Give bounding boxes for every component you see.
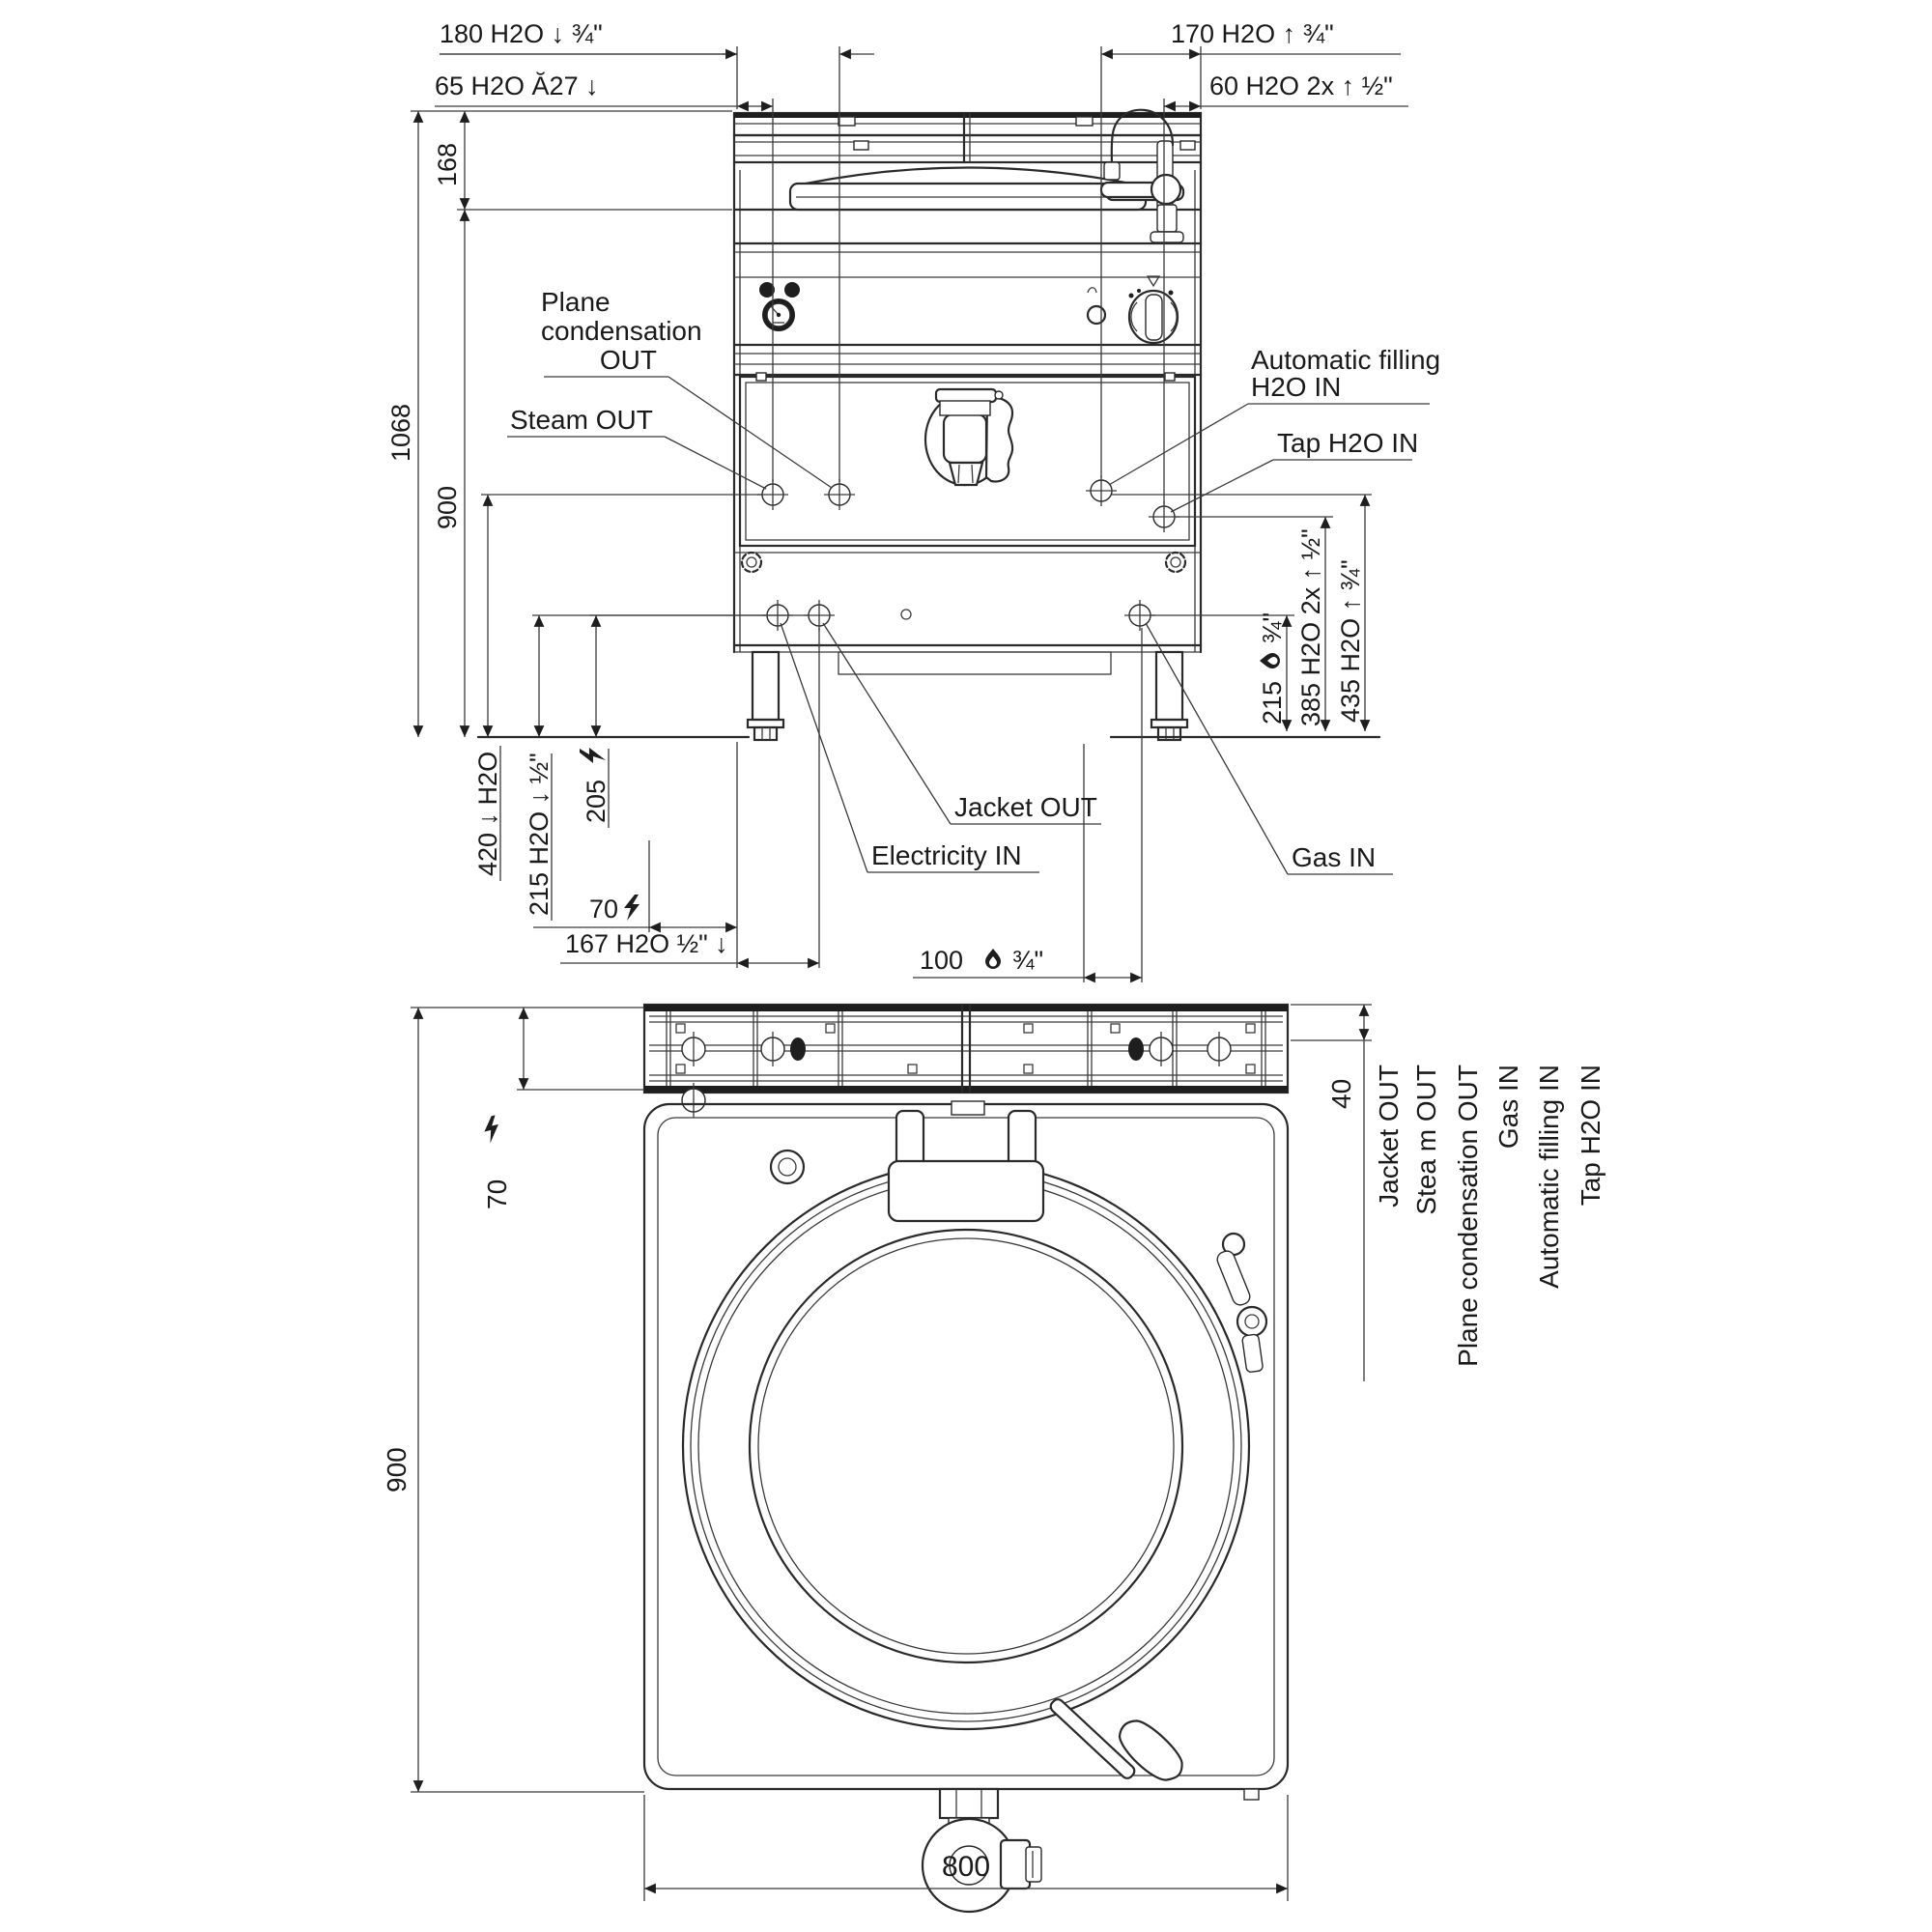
- kick-panel: [838, 652, 1111, 674]
- label-plane-condensation-3: OUT: [600, 345, 657, 375]
- dim-167-h2o: 167 H2O ½" ↓: [565, 929, 728, 958]
- dim-800-width: 800: [942, 1851, 990, 1883]
- pilot-hole: [901, 610, 911, 619]
- boiling-pan-technical-drawing: 180 H2O ↓ ¾" 65 H2O Ă27 ↓ 170 H2O ↑ ¾" 6…: [0, 0, 1932, 1932]
- label-electricity-in: Electricity IN: [871, 840, 1022, 870]
- svg-text:215: 215: [1258, 681, 1287, 724]
- flame-icon: [985, 949, 1001, 969]
- dim-40: 40: [1326, 1079, 1356, 1109]
- svg-text:¾": ¾": [1012, 946, 1043, 975]
- technical-drawing-page: 180 H2O ↓ ¾" 65 H2O Ă27 ↓ 170 H2O ↑ ¾" 6…: [0, 0, 1932, 1932]
- label-steam-out: Steam OUT: [510, 405, 653, 435]
- dim-60-h2o: 60 H2O 2x ↑ ½": [1209, 71, 1393, 100]
- star-screw-icon: [1166, 553, 1185, 572]
- pressure-gauge: [762, 298, 795, 331]
- water-tap-icon: [1101, 110, 1183, 242]
- legs: [748, 652, 1187, 740]
- dim-70-electric-plan: 70: [481, 1115, 512, 1209]
- label-jacket-out-plan: Jacket OUT: [1374, 1065, 1404, 1207]
- dim-215-h2o: 215 H2O ↓ ½": [525, 753, 554, 916]
- label-tap-h2o-in-plan: Tap H2O IN: [1576, 1065, 1605, 1206]
- dim-900-depth: 900: [382, 1447, 412, 1492]
- label-plane-condensation-1: Plane: [541, 287, 611, 317]
- dim-1068: 1068: [386, 404, 415, 462]
- dim-70-electric: 70: [589, 895, 639, 923]
- flame-icon: [1260, 653, 1280, 668]
- svg-text:¾": ¾": [1258, 612, 1287, 643]
- svg-text:70: 70: [482, 1179, 512, 1209]
- label-gas-in-plan: Gas IN: [1493, 1065, 1523, 1149]
- lightning-icon: [481, 1115, 502, 1144]
- front-door: [740, 373, 1195, 546]
- indicator-lights: [759, 282, 800, 298]
- dim-215-gas: 215 ¾": [1258, 612, 1287, 724]
- connection-point-plane-condensation: [824, 479, 855, 510]
- svg-text:205: 205: [582, 780, 611, 823]
- label-automatic-filling-in-plan: Automatic filling IN: [1534, 1065, 1564, 1289]
- label-jacket-out: Jacket OUT: [954, 792, 1097, 822]
- svg-text:100: 100: [920, 946, 963, 975]
- label-plane-condensation-2: condensation: [541, 316, 702, 346]
- control-panel: [759, 276, 1178, 343]
- plan-port-labels: Jacket OUT Stea m OUT Plane condensation…: [1374, 1065, 1605, 1367]
- label-tap-h2o-in: Tap H2O IN: [1277, 428, 1418, 458]
- lightning-icon: [624, 895, 639, 921]
- dim-65-h2o: 65 H2O Ă27 ↓: [435, 71, 599, 100]
- dim-420-h2o: 420 ↓ H2O: [473, 752, 502, 876]
- label-gas-in: Gas IN: [1292, 842, 1376, 872]
- backsplash-rail: [734, 113, 1201, 162]
- connection-point-autofill: [1086, 475, 1117, 506]
- dim-180-h2o: 180 H2O ↓ ¾": [440, 19, 603, 48]
- dim-170-h2o: 170 H2O ↑ ¾": [1171, 19, 1334, 48]
- plan-view: 900 70 40 800 Jacket OUT Stea m OUT Plan…: [382, 1005, 1605, 1912]
- control-knob[interactable]: [1129, 276, 1179, 343]
- lightning-icon: [580, 748, 606, 763]
- label-plane-condensation-out-plan: Plane condensation OUT: [1453, 1065, 1483, 1367]
- ignition-button[interactable]: [1088, 288, 1105, 324]
- dim-168: 168: [433, 143, 462, 186]
- label-automatic-filling-1: Automatic filling: [1251, 345, 1440, 375]
- lid-hinge: [889, 1101, 1043, 1221]
- dim-435-h2o: 435 H2O ↑ ¾": [1336, 559, 1365, 723]
- label-automatic-filling-2: H2O IN: [1251, 372, 1341, 402]
- plan-dimension-lines: [411, 1005, 1372, 1901]
- label-steam-out-plan: Stea m OUT: [1411, 1065, 1441, 1215]
- tilt-lever-handle[interactable]: [925, 389, 1012, 485]
- dim-100-gas: 100 ¾": [920, 946, 1043, 975]
- rear-foot-tab: [1244, 1789, 1259, 1800]
- dim-900: 900: [433, 486, 462, 529]
- star-screw-icon: [742, 553, 761, 572]
- vent-hole: [771, 1151, 804, 1183]
- svg-text:70: 70: [589, 895, 618, 923]
- kettle-well: [683, 1163, 1249, 1729]
- plan-dimension-texts: 900 70 40 800: [382, 1079, 1356, 1883]
- rail-dividers: [667, 1005, 1265, 1093]
- dim-205-electric: 205: [580, 748, 611, 823]
- dim-385-h2o: 385 H2O 2x ↑ ½": [1296, 528, 1325, 726]
- tap-top-view: [1215, 1234, 1266, 1373]
- front-view: 180 H2O ↓ ¾" 65 H2O Ă27 ↓ 170 H2O ↑ ¾" 6…: [386, 19, 1440, 982]
